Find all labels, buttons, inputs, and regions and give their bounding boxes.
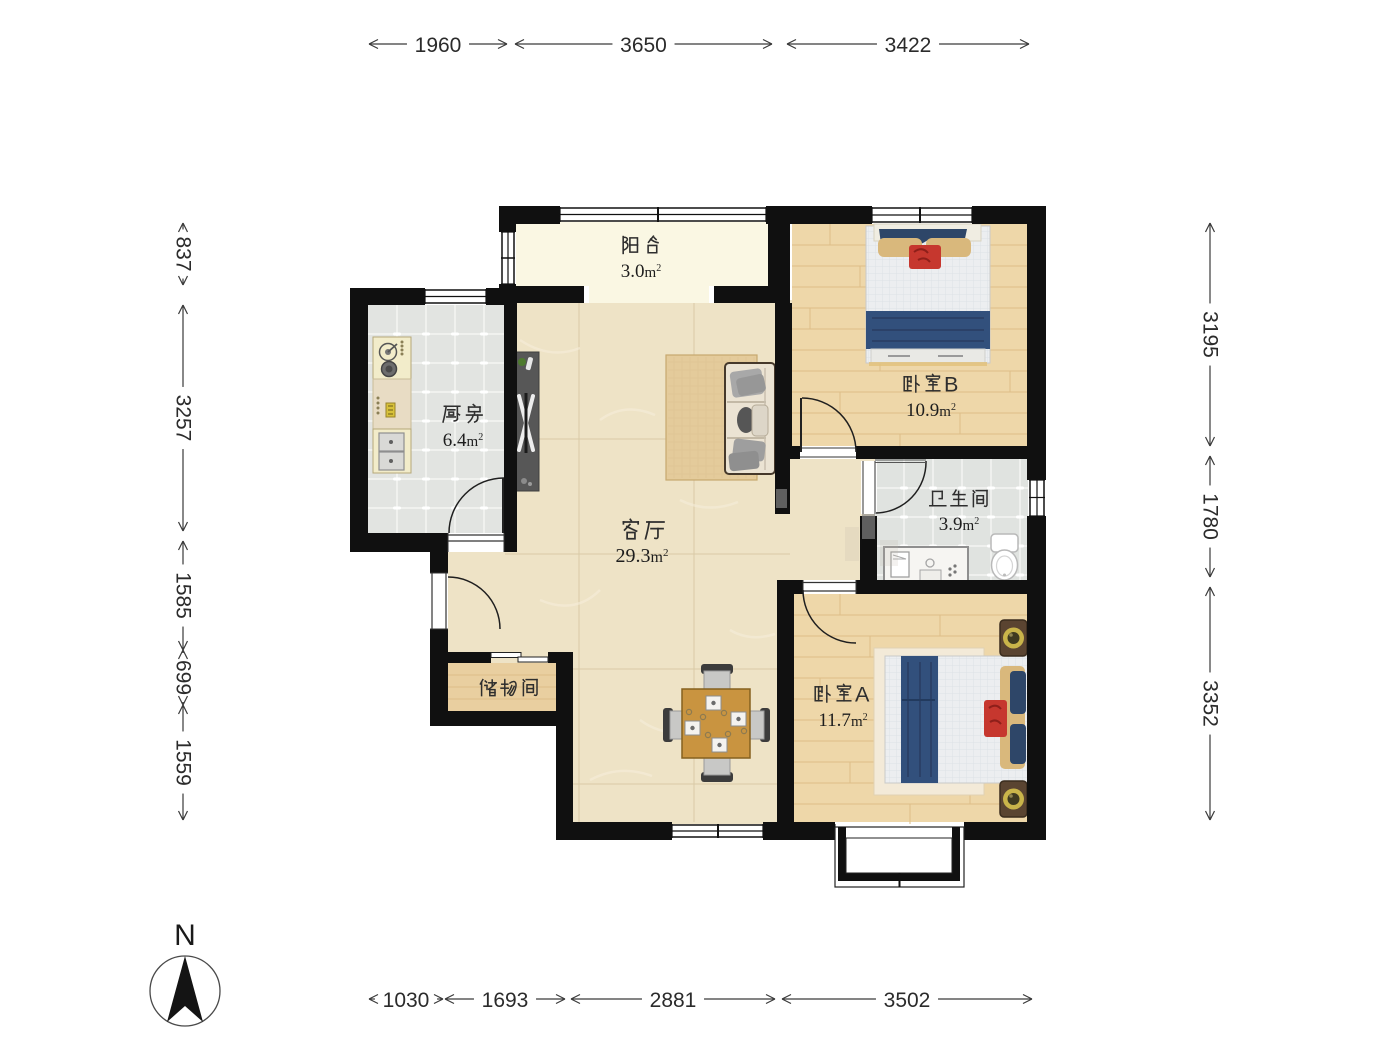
svg-text:3650: 3650 — [620, 34, 667, 57]
svg-text:3422: 3422 — [885, 34, 932, 57]
svg-text:1693: 1693 — [482, 989, 529, 1012]
svg-text:A: A — [855, 682, 870, 707]
svg-text:B: B — [944, 372, 958, 397]
svg-text:3.9m2: 3.9m2 — [939, 514, 979, 535]
svg-text:29.3m2: 29.3m2 — [616, 545, 669, 567]
svg-text:3195: 3195 — [1199, 311, 1222, 358]
svg-text:3352: 3352 — [1199, 680, 1222, 727]
svg-text:10.9m2: 10.9m2 — [906, 400, 956, 421]
svg-text:1030: 1030 — [383, 989, 430, 1012]
svg-text:2881: 2881 — [650, 989, 697, 1012]
svg-text:1585: 1585 — [172, 572, 195, 619]
svg-text:3502: 3502 — [884, 989, 931, 1012]
svg-text:1780: 1780 — [1199, 493, 1222, 540]
svg-text:N: N — [174, 919, 196, 952]
svg-text:3.0m2: 3.0m2 — [621, 261, 661, 282]
svg-text:1960: 1960 — [415, 34, 462, 57]
svg-text:837: 837 — [172, 236, 195, 271]
svg-text:3257: 3257 — [172, 395, 195, 442]
svg-text:699: 699 — [172, 660, 195, 695]
svg-text:6.4m2: 6.4m2 — [443, 430, 483, 451]
svg-text:1559: 1559 — [172, 739, 195, 786]
svg-text:11.7m2: 11.7m2 — [818, 710, 867, 731]
